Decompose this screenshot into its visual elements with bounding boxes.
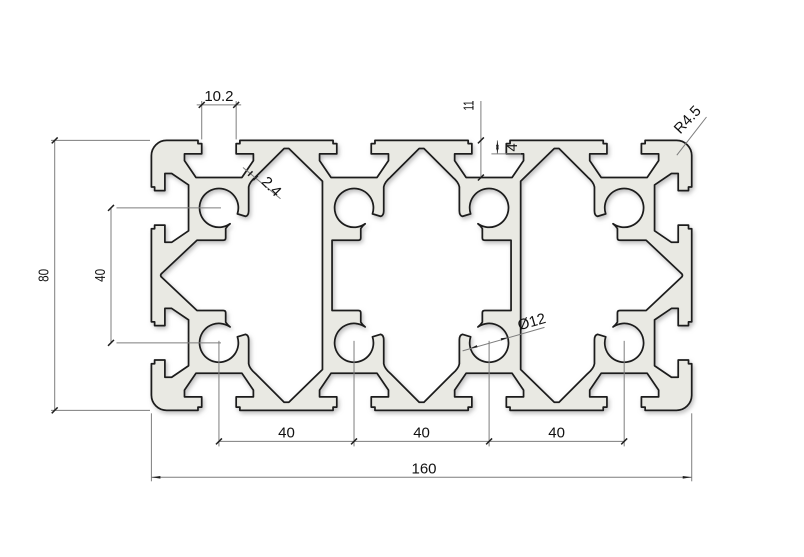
svg-text:40: 40 bbox=[413, 425, 430, 442]
svg-text:40: 40 bbox=[548, 425, 565, 442]
svg-text:4: 4 bbox=[504, 143, 521, 151]
svg-text:40: 40 bbox=[92, 269, 109, 282]
svg-text:10.2: 10.2 bbox=[204, 88, 233, 105]
svg-text:160: 160 bbox=[411, 461, 436, 478]
svg-text:40: 40 bbox=[278, 425, 295, 442]
svg-text:11: 11 bbox=[460, 101, 477, 111]
svg-text:R4.5: R4.5 bbox=[671, 103, 705, 138]
svg-text:2.4: 2.4 bbox=[258, 173, 285, 200]
svg-text:80: 80 bbox=[36, 269, 53, 282]
